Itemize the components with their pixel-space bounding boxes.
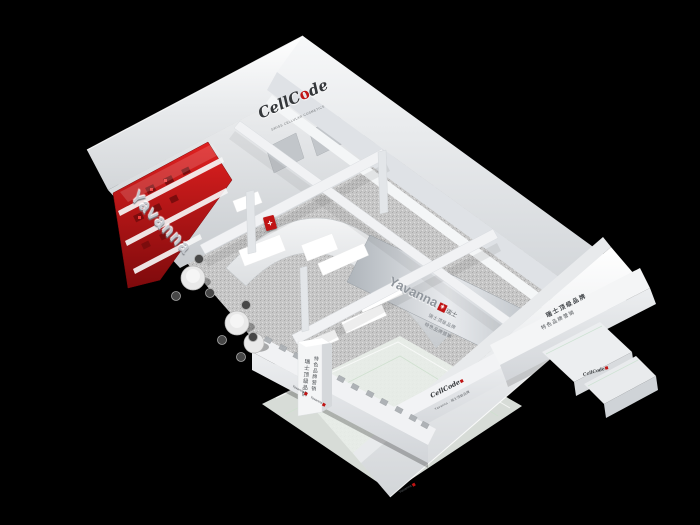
edge-yavanna-label-2: Yavanna (309, 395, 326, 407)
signage-layer: CellCode SWISS CELLULAR COSMETICS Yavann… (0, 0, 700, 525)
cellcode-header-logo: CellCode (255, 76, 331, 123)
red-dot-icon (322, 402, 326, 406)
pillar-vertical-text-2: 特色品牌营销 (310, 356, 320, 392)
edge-label-2-text: Yavanna (309, 395, 322, 405)
red-dot-icon (411, 482, 415, 486)
yavanna-wall-letters: Yavanna (126, 187, 196, 259)
corner-yavanna-label: Yavanna (398, 482, 416, 494)
counter-cellcode-logo: CellCode (583, 366, 610, 378)
red-dot-icon (605, 366, 609, 370)
red-dot-icon (304, 391, 308, 395)
red-cross-sign: + (263, 215, 277, 231)
yavanna-panel-name: Yavanna (387, 274, 441, 311)
yavanna-panel-logo: Yavanna+瑞士 (387, 274, 462, 321)
counter-logo-text: CellCode (583, 367, 606, 378)
red-dot-icon (460, 378, 464, 382)
yavanna-panel-suffix: 瑞士 (444, 309, 457, 320)
corner-label-text: Yavanna (398, 484, 412, 494)
render-canvas: CellCode SWISS CELLULAR COSMETICS Yavann… (0, 0, 700, 525)
